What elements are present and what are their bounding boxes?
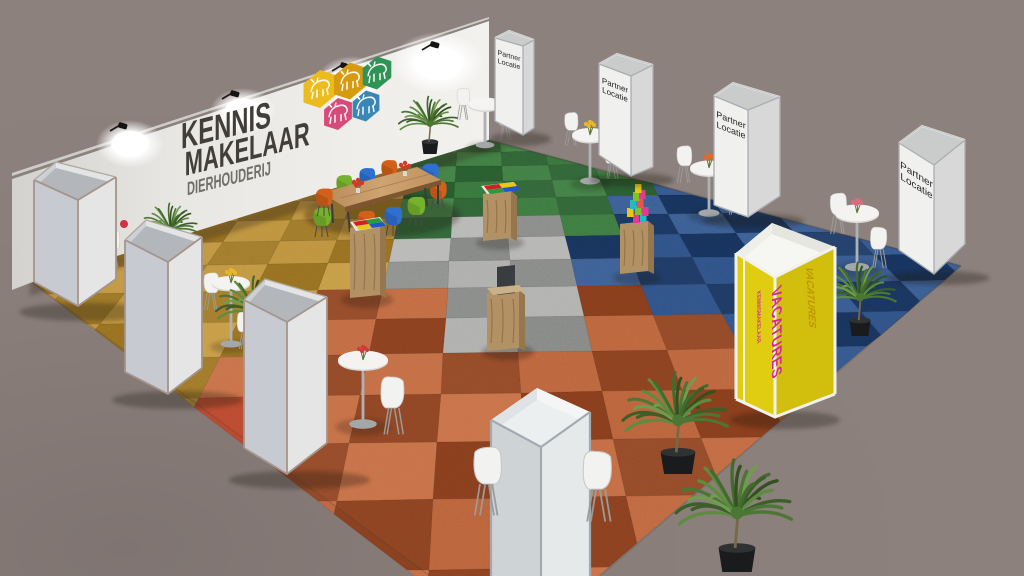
svg-text:KENNISMAKELAAR: KENNISMAKELAAR — [755, 290, 761, 346]
svg-text:VACATURES: VACATURES — [768, 283, 784, 383]
